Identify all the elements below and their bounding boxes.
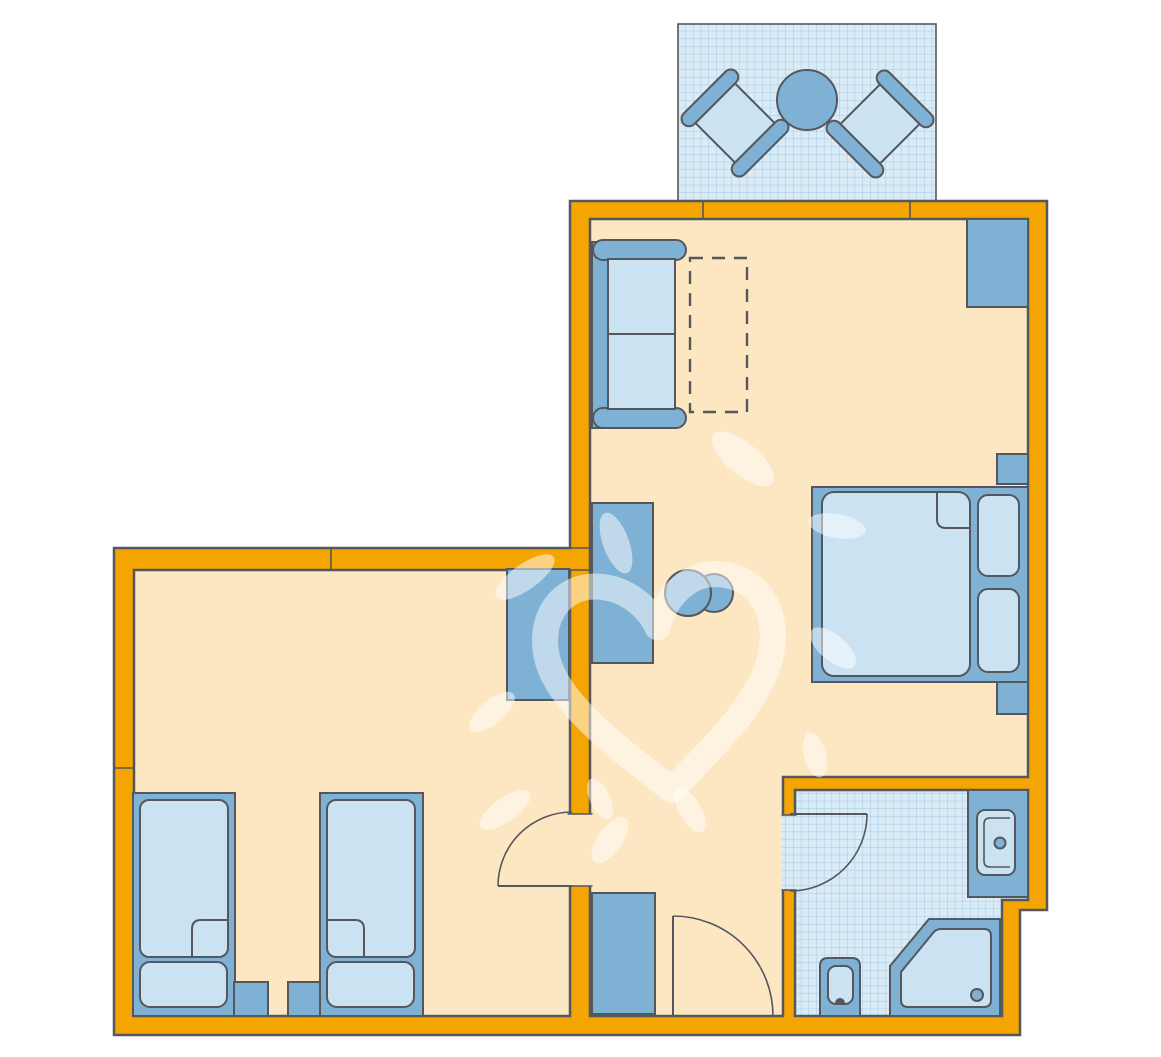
sofa-back <box>592 242 609 428</box>
door-opening <box>568 814 593 886</box>
sofa <box>592 240 686 428</box>
drain-icon <box>971 989 983 1001</box>
sofa-armrest <box>593 240 686 260</box>
nightstand <box>997 682 1028 714</box>
nightstand <box>288 982 321 1016</box>
mattress <box>327 800 415 957</box>
single-bed-2 <box>320 793 423 1016</box>
sofa-cushion <box>608 259 675 334</box>
nightstand <box>234 982 268 1016</box>
single-bed-1 <box>133 793 235 1016</box>
sink-vanity <box>968 790 1028 897</box>
wardrobe-living-room <box>967 219 1028 307</box>
pillow <box>978 495 1019 576</box>
double-bed <box>812 454 1028 714</box>
floor-plan <box>0 0 1161 1057</box>
pillow <box>978 589 1019 672</box>
patio-table-icon <box>777 70 837 130</box>
drain-icon <box>995 838 1006 849</box>
pillow <box>327 962 414 1007</box>
sofa-cushion <box>608 334 675 409</box>
nightstand <box>997 454 1028 484</box>
mattress <box>140 800 228 957</box>
pillow <box>140 962 227 1007</box>
door-opening <box>782 815 797 890</box>
balcony <box>678 24 937 201</box>
sofa-armrest <box>593 408 686 428</box>
toilet <box>820 958 860 1016</box>
hall-cabinet <box>592 893 655 1014</box>
